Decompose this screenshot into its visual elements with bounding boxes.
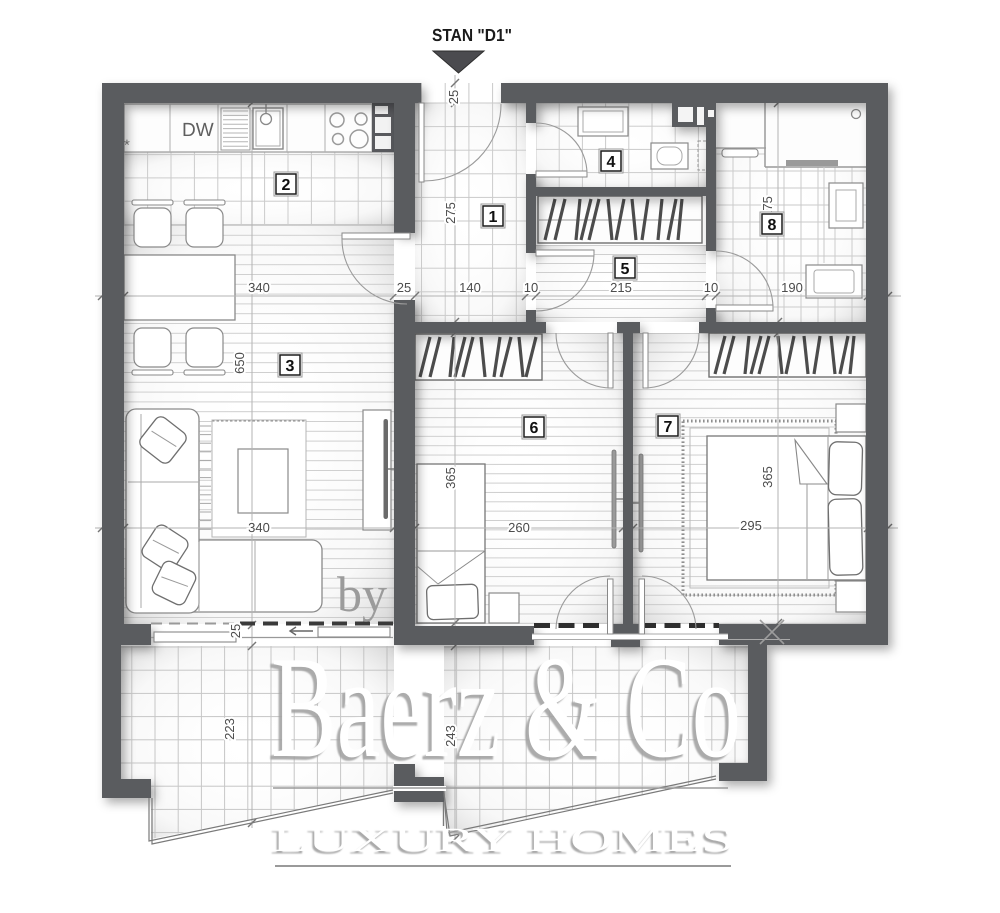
- svg-text:Baerz & Co: Baerz & Co: [271, 626, 741, 788]
- svg-text:2: 2: [282, 177, 291, 194]
- svg-text:365: 365: [443, 467, 458, 489]
- svg-text:275: 275: [443, 202, 458, 224]
- svg-text:10: 10: [704, 280, 718, 295]
- svg-text:by: by: [337, 566, 387, 622]
- svg-text:7: 7: [664, 419, 673, 436]
- svg-text:DW: DW: [182, 120, 214, 141]
- svg-text:260: 260: [508, 520, 530, 535]
- svg-text:5: 5: [621, 261, 630, 278]
- svg-text:4: 4: [607, 154, 616, 171]
- svg-text:25: 25: [397, 280, 411, 295]
- svg-text:8: 8: [768, 217, 777, 234]
- svg-text:365: 365: [760, 466, 775, 488]
- svg-text:25: 25: [228, 624, 243, 638]
- svg-text:140: 140: [459, 280, 481, 295]
- svg-text:1: 1: [489, 209, 498, 226]
- svg-text:650: 650: [232, 352, 247, 374]
- svg-text:340: 340: [248, 520, 270, 535]
- svg-text:LUXURY HOMES: LUXURY HOMES: [272, 822, 734, 859]
- svg-text:10: 10: [524, 280, 538, 295]
- svg-text:215: 215: [610, 280, 632, 295]
- svg-text:223: 223: [222, 718, 237, 740]
- svg-text:*: *: [124, 137, 130, 154]
- svg-text:3: 3: [286, 358, 295, 375]
- svg-text:295: 295: [740, 518, 762, 533]
- svg-text:340: 340: [248, 280, 270, 295]
- svg-text:25: 25: [446, 90, 461, 104]
- svg-text:STAN "D1": STAN "D1": [432, 25, 512, 45]
- svg-text:190: 190: [781, 280, 803, 295]
- svg-text:6: 6: [530, 420, 539, 437]
